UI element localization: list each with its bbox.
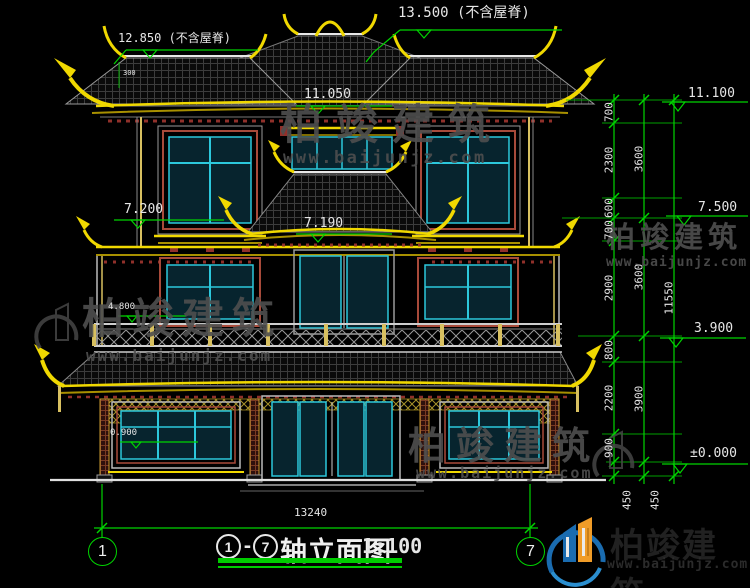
right-level-11100: 11.100 — [688, 87, 735, 100]
chain-b-3900: 3900 — [634, 386, 645, 413]
logo-emblem — [549, 517, 603, 585]
entry-steps — [240, 485, 424, 491]
watermark-site-right: www.baijunjz.com — [606, 256, 747, 269]
chain-b-3600b: 3600 — [634, 264, 645, 291]
dim-small-300: 300 — [123, 70, 136, 77]
axis-bubble-1-label: 1 — [98, 543, 107, 561]
title-underline-2 — [218, 566, 402, 568]
chain-b-450: 450 — [650, 490, 661, 510]
title-axis-circle-1: 1 — [216, 534, 241, 559]
level-0900: 0.900 — [110, 429, 137, 438]
watermark-brand-top: 柏竣建筑 — [280, 104, 504, 146]
title-axis-7: 7 — [262, 539, 270, 555]
logo-site: www.baijunjz.com — [607, 557, 748, 572]
watermark-brand-right: 柏竣建筑 — [606, 224, 742, 253]
chain-a-600: 600 — [604, 198, 615, 218]
level-7200: 7.200 — [124, 203, 163, 216]
door-2f-center — [294, 250, 394, 334]
axis-bubble-7-label: 7 — [526, 543, 535, 561]
watermark-emblem-left — [36, 304, 76, 348]
level-4800: 4.800 — [108, 303, 135, 312]
watermark-site-bottom: www.baijunjz.com — [416, 466, 593, 481]
title-dash: - — [242, 538, 253, 556]
dim-top-ridge: 13.500 (不含屋脊) — [398, 6, 530, 20]
dim-left-ridge: 12.850 (不含屋脊) — [118, 32, 231, 44]
watermark-site-left: www.baijunjz.com — [86, 348, 272, 364]
logo-brand: 柏竣建筑 — [610, 518, 750, 588]
chain-total-11550: 11550 — [664, 281, 675, 314]
watermark-brand-bottom: 柏竣建筑 — [408, 428, 600, 466]
chain-a-2200: 2200 — [604, 385, 615, 412]
chain-a-2300: 2300 — [604, 147, 615, 174]
dim-13240: 13240 — [294, 507, 327, 518]
right-level-0000: ±0.000 — [690, 447, 737, 460]
level-11050: 11.050 — [304, 88, 351, 101]
chain-a-450: 450 — [622, 490, 633, 510]
level-7190: 7.190 — [304, 217, 343, 230]
right-level-3900: 3.900 — [694, 322, 733, 335]
title-axis-1: 1 — [225, 539, 233, 555]
drawing-scale: 1:100 — [362, 536, 422, 556]
chain-a-700b: 700 — [604, 220, 615, 240]
watermark-site-top: www.baijunjz.com — [283, 150, 487, 167]
title-underline — [218, 558, 402, 563]
elevation-drawing — [0, 0, 750, 588]
axis-bubble-7: 7 — [516, 537, 545, 566]
right-level-7500: 7.500 — [698, 201, 737, 214]
chain-a-900: 900 — [604, 438, 615, 458]
cad-elevation-screenshot: 柏竣建筑 www.baijunjz.com 柏竣建筑 www.baijunjz.… — [0, 0, 750, 588]
window-2f-right — [418, 258, 518, 326]
title-axis-circle-7: 7 — [253, 534, 278, 559]
chain-a-700a: 700 — [604, 102, 615, 122]
chain-a-800: 800 — [604, 340, 615, 360]
chain-b-3600a: 3600 — [634, 146, 645, 173]
axis-bubble-1: 1 — [88, 537, 117, 566]
chain-a-2900: 2900 — [604, 275, 615, 302]
